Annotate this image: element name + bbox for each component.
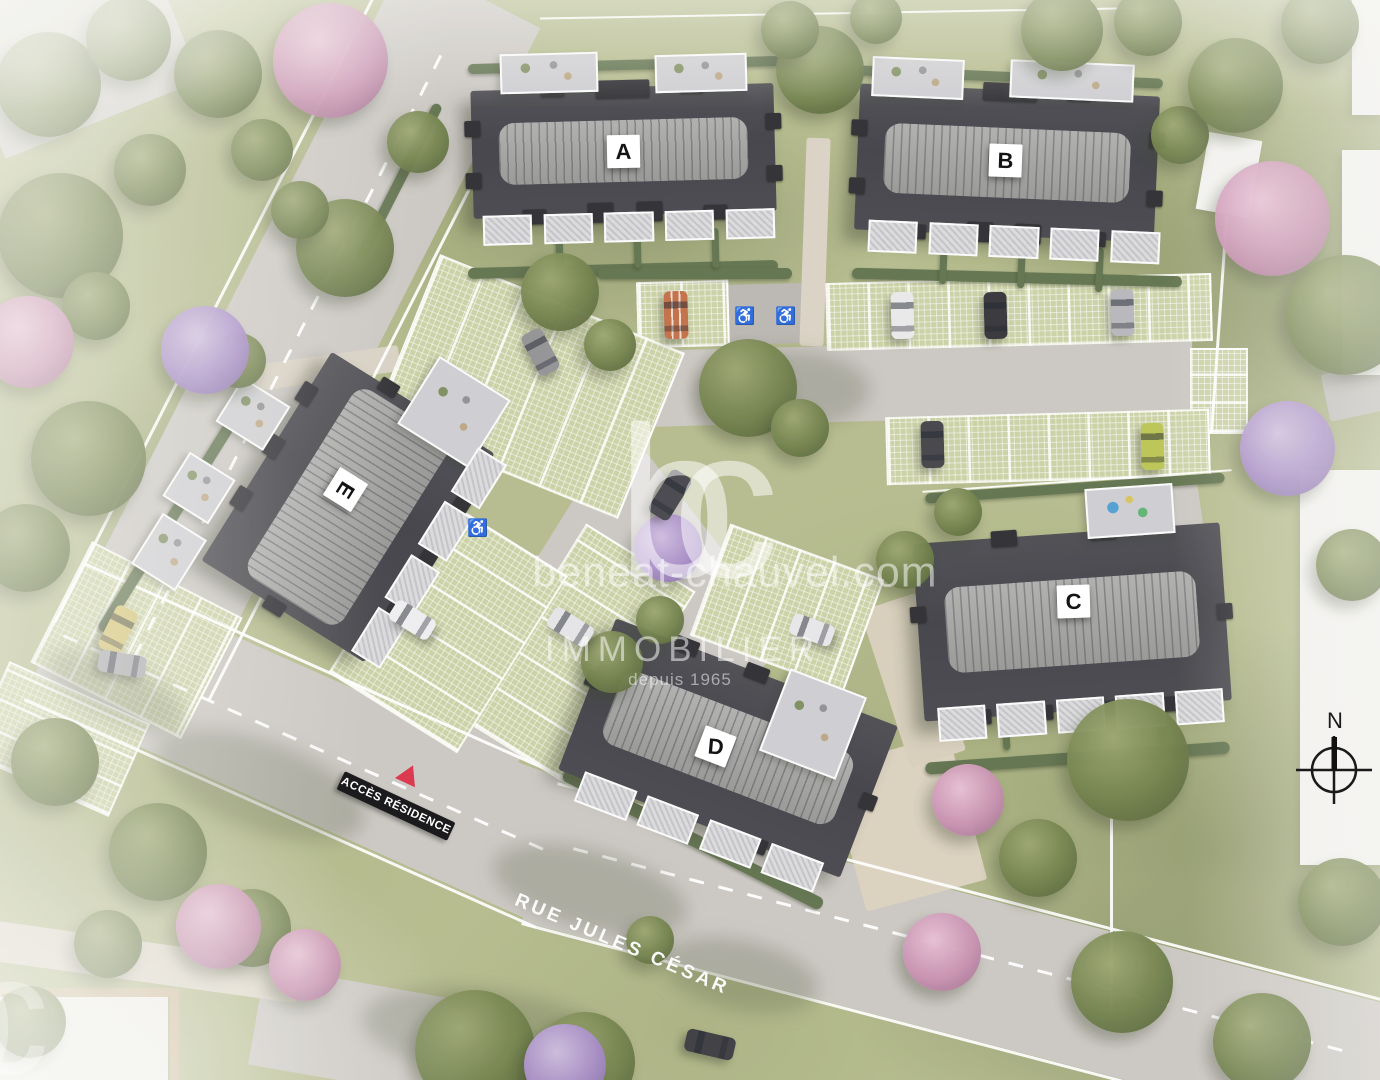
patio — [1049, 228, 1100, 262]
patio — [665, 210, 715, 241]
tree — [1213, 993, 1311, 1080]
tree — [999, 819, 1077, 897]
building-label-e-text: E — [331, 476, 361, 502]
building-b-dormer — [851, 119, 868, 136]
flowering-tree — [176, 884, 261, 969]
tree — [31, 401, 146, 516]
watermark-logo-partial: bc — [0, 930, 49, 1080]
building-b-dormer — [1146, 190, 1163, 207]
carport-edge — [170, 988, 179, 1080]
disabled-parking-icon: ♿ — [467, 520, 488, 537]
car — [920, 420, 944, 468]
tree — [521, 253, 599, 331]
patio — [483, 215, 533, 246]
patio — [1110, 230, 1161, 264]
tree — [1188, 38, 1283, 133]
tree — [114, 134, 186, 206]
car — [983, 291, 1007, 339]
tree — [271, 181, 329, 239]
car — [890, 291, 914, 339]
patio — [725, 208, 775, 239]
compass-north-icon: N — [1292, 700, 1380, 812]
building-c-dormer — [1216, 603, 1233, 620]
tree — [1071, 931, 1173, 1033]
tree — [1316, 529, 1380, 601]
tree — [934, 488, 982, 536]
roof-terrace — [871, 56, 965, 100]
building-label-a: A — [607, 135, 641, 169]
patio — [543, 213, 593, 244]
tree — [109, 803, 207, 901]
flowering-tree — [903, 913, 981, 991]
tree — [11, 718, 99, 806]
tree — [74, 910, 142, 978]
flowering-tree — [1240, 401, 1335, 496]
tree — [0, 32, 101, 137]
car — [663, 291, 688, 340]
tree — [771, 399, 829, 457]
building-c-dormer — [910, 606, 927, 623]
building-label-b: B — [988, 143, 1022, 177]
watermark-tagline: depuis 1965 — [628, 670, 732, 690]
flowering-tree — [273, 3, 388, 118]
tree — [387, 111, 449, 173]
tree — [1067, 699, 1189, 821]
building-a-dormer — [594, 79, 648, 98]
roof-terrace — [499, 52, 598, 95]
building-label-a-text: A — [615, 138, 631, 164]
building-label-b-text: B — [997, 147, 1014, 174]
building-label-d-text: D — [706, 733, 724, 760]
compass-north-label: N — [1327, 708, 1343, 733]
patio — [1174, 688, 1224, 725]
flowering-tree — [932, 764, 1004, 836]
tree — [174, 30, 262, 118]
tree — [584, 319, 636, 371]
patio — [996, 701, 1046, 738]
building-a-dormer — [465, 172, 481, 188]
car — [1110, 288, 1134, 336]
building-label-c: C — [1056, 584, 1090, 618]
building-a-dormer — [464, 121, 480, 137]
patio — [928, 222, 979, 256]
patio — [937, 705, 987, 742]
building-a-dormer — [766, 164, 782, 180]
building-a-dormer — [765, 113, 781, 129]
flowering-tree — [1215, 161, 1330, 276]
disabled-parking-icon: ♿ — [734, 308, 755, 325]
watermark-brand: IMMOBILIER — [545, 630, 821, 670]
roof-terrace — [1084, 483, 1175, 539]
flowering-tree — [269, 929, 341, 1001]
hedge — [598, 268, 792, 279]
building-label-c-text: C — [1065, 588, 1082, 615]
patio — [604, 211, 654, 242]
watermark-website: beneat-chauvel.com — [532, 549, 937, 598]
roof-terrace — [655, 53, 748, 93]
disabled-parking-icon: ♿ — [775, 308, 796, 325]
car — [1140, 422, 1164, 470]
building-b-dormer — [849, 177, 866, 194]
tree — [1298, 858, 1380, 946]
site-plan: ♿♿♿ bc bc beneat-chauvel.com IMMOBILIER … — [0, 0, 1380, 1080]
tree — [761, 1, 819, 59]
flowering-tree — [161, 306, 249, 394]
tree — [231, 119, 293, 181]
building-c-dormer — [991, 530, 1018, 548]
patio — [989, 225, 1040, 259]
patio — [867, 220, 918, 254]
